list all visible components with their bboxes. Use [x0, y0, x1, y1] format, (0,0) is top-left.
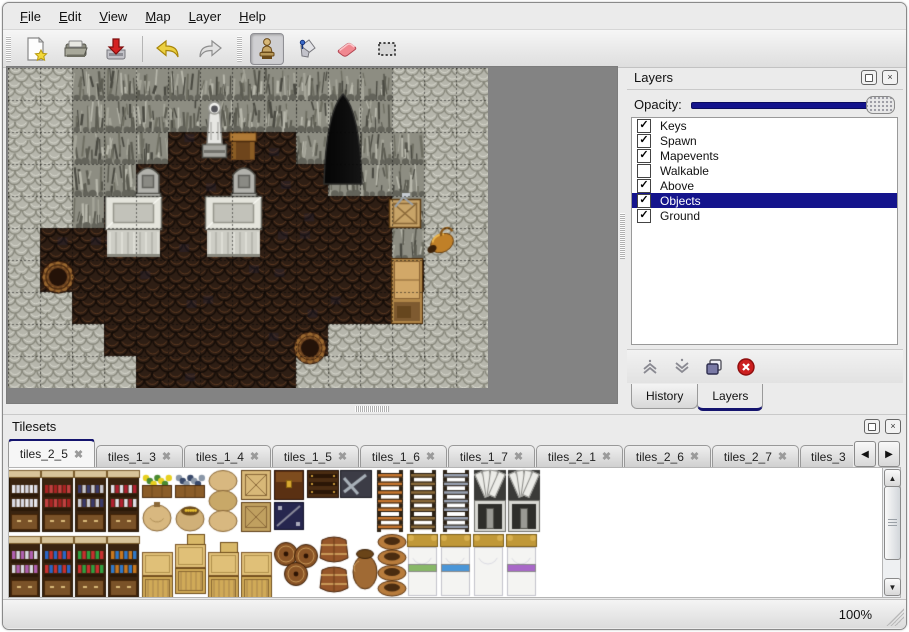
selection-icon: [374, 36, 400, 62]
layer-checkbox[interactable]: ✓: [637, 134, 651, 148]
tab-scroll-arrows: ◀ ▶: [852, 441, 900, 467]
status-bar: 100%: [3, 599, 906, 628]
float-icon: [868, 423, 876, 431]
tileset-tab-tiles_2_5[interactable]: tiles_2_5✖: [8, 439, 95, 467]
app-stage: FileEditViewMapLayerHelp Layers × Opacit…: [0, 0, 909, 632]
tab-label: tiles_1_7: [460, 450, 508, 464]
raise-layer-button[interactable]: [637, 355, 663, 379]
close-tab-icon[interactable]: ✖: [690, 450, 699, 463]
new-map-button[interactable]: [19, 33, 53, 65]
close-tab-icon[interactable]: ✖: [74, 448, 83, 461]
layer-name: Mapevents: [660, 149, 719, 163]
tileset-canvas[interactable]: [9, 468, 881, 597]
tileset-tab-tiles_3[interactable]: tiles_3: [800, 445, 853, 467]
toolbar-drag-handle[interactable]: [6, 36, 11, 62]
tileset-tabs: tiles_2_5✖tiles_1_3✖tiles_1_4✖tiles_1_5✖…: [8, 439, 853, 467]
save-map-button[interactable]: [99, 33, 133, 65]
opacity-slider[interactable]: [691, 95, 895, 113]
tab-label: tiles_1_3: [108, 450, 156, 464]
tab-label: tiles_1_6: [372, 450, 420, 464]
layer-checkbox[interactable]: ✓: [637, 149, 651, 163]
tab-label: tiles_3: [811, 450, 846, 464]
new-file-icon: [23, 36, 49, 62]
tab-label: tiles_2_5: [20, 447, 68, 461]
close-tab-icon[interactable]: ✖: [426, 450, 435, 463]
tab-layers[interactable]: Layers: [697, 384, 763, 411]
scroll-up-button[interactable]: ▲: [884, 469, 901, 487]
menu-help[interactable]: Help: [230, 6, 275, 27]
scroll-tabs-right-button[interactable]: ▶: [878, 441, 900, 467]
undo-button[interactable]: [152, 33, 186, 65]
eraser-tool-button[interactable]: [330, 33, 364, 65]
tileset-tab-tiles_2_1[interactable]: tiles_2_1✖: [536, 445, 623, 467]
layer-name: Spawn: [660, 134, 697, 148]
tileset-tab-tiles_1_3[interactable]: tiles_1_3✖: [96, 445, 183, 467]
open-map-button[interactable]: [59, 33, 93, 65]
redo-button[interactable]: [192, 33, 226, 65]
layer-buttons: [627, 349, 903, 383]
fill-tool-button[interactable]: [290, 33, 324, 65]
dock-bottom-tabs: HistoryLayers: [631, 384, 762, 412]
layer-name: Ground: [660, 209, 700, 223]
tileset-tab-tiles_2_7[interactable]: tiles_2_7✖: [712, 445, 799, 467]
layer-list: ✓Keys✓Spawn✓MapeventsWalkable✓Above✓Obje…: [631, 117, 898, 345]
layer-row-spawn[interactable]: ✓Spawn: [632, 133, 897, 148]
close-tab-icon[interactable]: ✖: [778, 450, 787, 463]
splitter-grip-icon: [620, 213, 625, 259]
duplicate-layer-icon: [704, 357, 724, 377]
layer-row-objects[interactable]: ✓Objects: [632, 193, 897, 208]
tab-history[interactable]: History: [631, 384, 698, 409]
redo-arrow-icon: [196, 36, 222, 62]
tileset-tab-tiles_2_6[interactable]: tiles_2_6✖: [624, 445, 711, 467]
select-tool-button[interactable]: [370, 33, 404, 65]
lower-layer-button[interactable]: [669, 355, 695, 379]
paint-bucket-icon: [294, 36, 320, 62]
menu-bar: FileEditViewMapLayerHelp: [3, 3, 906, 30]
map-editor-window: FileEditViewMapLayerHelp Layers × Opacit…: [2, 2, 907, 630]
undo-arrow-icon: [156, 36, 182, 62]
tilesets-dock: Tilesets × tiles_2_5✖tiles_1_3✖tiles_1_4…: [3, 414, 906, 600]
map-view[interactable]: [6, 66, 618, 404]
tilesets-title: Tilesets: [3, 419, 864, 434]
tileset-tab-tiles_1_4[interactable]: tiles_1_4✖: [184, 445, 271, 467]
float-icon: [865, 74, 873, 82]
delete-layer-icon: [736, 357, 756, 377]
close-icon: ×: [890, 422, 895, 431]
opacity-slider-groove: [691, 102, 895, 109]
scroll-down-button[interactable]: ▼: [884, 578, 901, 596]
layers-dock-title: Layers: [627, 70, 861, 85]
splitter-grip-icon: [355, 406, 389, 412]
toolbar-drag-handle-2[interactable]: [237, 36, 242, 62]
layer-row-mapevents[interactable]: ✓Mapevents: [632, 148, 897, 163]
tileset-scrollbar[interactable]: ▲ ▼: [882, 468, 900, 597]
opacity-row: Opacity:: [627, 93, 903, 115]
layers-dock: Layers × Opacity: ✓Keys✓Spawn✓MapeventsW…: [627, 66, 903, 414]
layer-row-walkable[interactable]: Walkable: [632, 163, 897, 178]
close-tab-icon[interactable]: ✖: [250, 450, 259, 463]
close-tab-icon[interactable]: ✖: [514, 450, 523, 463]
layer-checkbox[interactable]: ✓: [637, 194, 651, 208]
tileset-tab-tiles_1_7[interactable]: tiles_1_7✖: [448, 445, 535, 467]
layer-name: Keys: [660, 119, 687, 133]
resize-grip[interactable]: [884, 606, 904, 626]
open-folder-icon: [63, 36, 89, 62]
close-tab-icon[interactable]: ✖: [602, 450, 611, 463]
map-canvas[interactable]: [8, 68, 488, 388]
tab-label: tiles_2_7: [724, 450, 772, 464]
stamp-tool-button[interactable]: [250, 33, 284, 65]
toolbar-separator: [142, 36, 143, 62]
float-dock-button[interactable]: [861, 70, 877, 85]
menu-file[interactable]: File: [11, 6, 50, 27]
opacity-slider-handle[interactable]: [866, 96, 895, 114]
duplicate-layer-button[interactable]: [701, 355, 727, 379]
save-icon: [103, 36, 129, 62]
float-tilesets-button[interactable]: [864, 419, 880, 434]
tab-label: tiles_2_6: [636, 450, 684, 464]
opacity-label: Opacity:: [627, 97, 682, 112]
stamp-icon: [254, 36, 280, 62]
layer-checkbox[interactable]: ✓: [637, 209, 651, 223]
delete-layer-button[interactable]: [733, 355, 759, 379]
close-tab-icon[interactable]: ✖: [338, 450, 347, 463]
tileset-content[interactable]: ▲ ▼: [8, 467, 901, 598]
menu-map[interactable]: Map: [136, 6, 179, 27]
close-tilesets-button[interactable]: ×: [885, 419, 901, 434]
tab-label: tiles_2_1: [548, 450, 596, 464]
menu-view[interactable]: View: [90, 6, 136, 27]
tileset-tab-tiles_1_5[interactable]: tiles_1_5✖: [272, 445, 359, 467]
eraser-icon: [334, 36, 360, 62]
tilesets-titlebar: Tilesets ×: [3, 415, 906, 438]
scrollbar-thumb[interactable]: [884, 486, 901, 560]
close-icon: ×: [887, 73, 892, 82]
layer-name: Above: [660, 179, 694, 193]
close-tab-icon[interactable]: ✖: [162, 450, 171, 463]
tileset-tab-tiles_1_6[interactable]: tiles_1_6✖: [360, 445, 447, 467]
layer-name: Objects: [660, 194, 701, 208]
menu-layer[interactable]: Layer: [180, 6, 231, 27]
layer-checkbox[interactable]: ✓: [637, 179, 651, 193]
close-dock-button[interactable]: ×: [882, 70, 898, 85]
thumb-grip-icon: [888, 519, 897, 526]
tab-label: tiles_1_5: [284, 450, 332, 464]
layer-checkbox[interactable]: [637, 164, 651, 178]
layer-row-ground[interactable]: ✓Ground: [632, 208, 897, 223]
scroll-tabs-left-button[interactable]: ◀: [854, 441, 876, 467]
raise-layer-icon: [640, 357, 660, 377]
layer-checkbox[interactable]: ✓: [637, 119, 651, 133]
layers-dock-titlebar: Layers ×: [627, 66, 903, 90]
layer-row-above[interactable]: ✓Above: [632, 178, 897, 193]
tab-label: tiles_1_4: [196, 450, 244, 464]
lower-layer-icon: [672, 357, 692, 377]
menu-edit[interactable]: Edit: [50, 6, 90, 27]
layer-row-keys[interactable]: ✓Keys: [632, 118, 897, 133]
vertical-splitter[interactable]: [618, 66, 627, 404]
toolbar: [3, 30, 906, 68]
layer-name: Walkable: [660, 164, 709, 178]
zoom-level: 100%: [839, 607, 872, 622]
